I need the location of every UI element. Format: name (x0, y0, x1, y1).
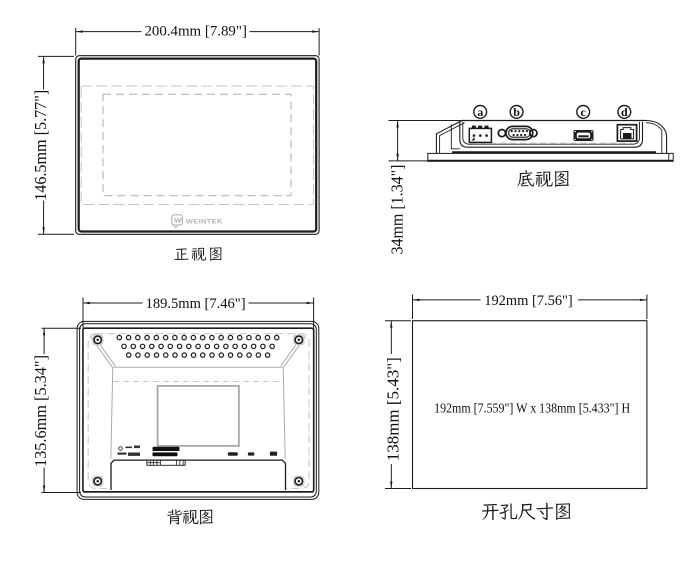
svg-text:135.6mm [5.34"]: 135.6mm [5.34"] (31, 355, 50, 467)
svg-text:WEINTEK: WEINTEK (186, 219, 223, 226)
svg-text:192mm [7.56"]: 192mm [7.56"] (484, 292, 573, 309)
svg-text:200.4mm [7.89"]: 200.4mm [7.89"] (144, 23, 247, 40)
svg-text:146.5mm [5.77"]: 146.5mm [5.77"] (31, 90, 50, 201)
svg-text:b: b (513, 105, 520, 119)
svg-text:138mm [5.43"]: 138mm [5.43"] (384, 357, 403, 461)
svg-text:c: c (581, 105, 587, 119)
svg-text:d: d (621, 105, 628, 119)
svg-text:a: a (477, 105, 483, 119)
svg-text:34mm [1.34"]: 34mm [1.34"] (388, 165, 407, 255)
svg-text:192mm [7.559"] W x 138mm [5.43: 192mm [7.559"] W x 138mm [5.433"] H (434, 402, 630, 417)
svg-text:189.5mm [7.46"]: 189.5mm [7.46"] (146, 295, 246, 312)
